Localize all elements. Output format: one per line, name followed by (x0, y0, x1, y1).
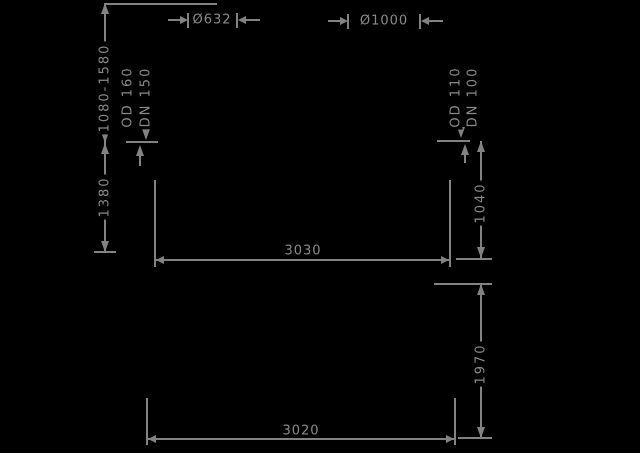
right-arrowhead (446, 435, 454, 443)
outlet-od-label: OD 110 (450, 64, 463, 129)
width-ext-line-left (154, 180, 156, 267)
outlet-height-bottom-ref (456, 258, 492, 260)
left-dia-arrow-shaft (246, 19, 260, 21)
left-dim-bottom-tick (94, 251, 116, 253)
inlet-down-arrowhead (142, 129, 150, 140)
technical-dimension-drawing: 1080-1580 1380 OD 160 DN 150 Ø632 Ø1000 … (0, 0, 640, 453)
height-range-label: 1080-1580 (99, 42, 112, 135)
right-dia-left-arrowhead (421, 17, 429, 25)
outlet-invert-line (437, 140, 470, 142)
lower-width-label: 3020 (280, 425, 321, 438)
up-arrowhead (477, 141, 485, 152)
left-dia-tick-left (187, 13, 189, 28)
right-diameter-label: Ø1000 (358, 15, 410, 28)
inlet-od-label: OD 160 (122, 64, 135, 129)
right-arrowhead (441, 256, 449, 264)
top-reference-line (105, 3, 217, 5)
up-arrowhead (477, 284, 485, 295)
upper-width-label: 3030 (282, 245, 323, 258)
right-dia-tick-left (347, 14, 349, 29)
up-arrowhead (101, 3, 109, 14)
inlet-invert-line (126, 141, 158, 143)
width-ext-line-right (449, 180, 451, 267)
down-arrowhead (477, 247, 485, 258)
outlet-up-arrow-shaft (464, 153, 466, 163)
lower-height-label: 1970 (475, 341, 488, 386)
left-arrowhead (148, 435, 156, 443)
right-dia-arrow-shaft (429, 20, 443, 22)
inlet-up-arrow-shaft (139, 154, 141, 166)
lower-bottom-ref-right (458, 437, 492, 439)
height-lower-label: 1380 (99, 174, 112, 219)
left-arrowhead (156, 256, 164, 264)
upper-width-dim-line (155, 259, 450, 261)
outlet-dn-label: DN 100 (467, 65, 480, 130)
inlet-dn-label: DN 150 (140, 65, 153, 130)
left-diameter-label: Ø632 (190, 14, 233, 27)
outlet-height-label: 1040 (475, 180, 488, 225)
left-dia-left-arrowhead (238, 16, 246, 24)
up-arrowhead (101, 143, 109, 154)
